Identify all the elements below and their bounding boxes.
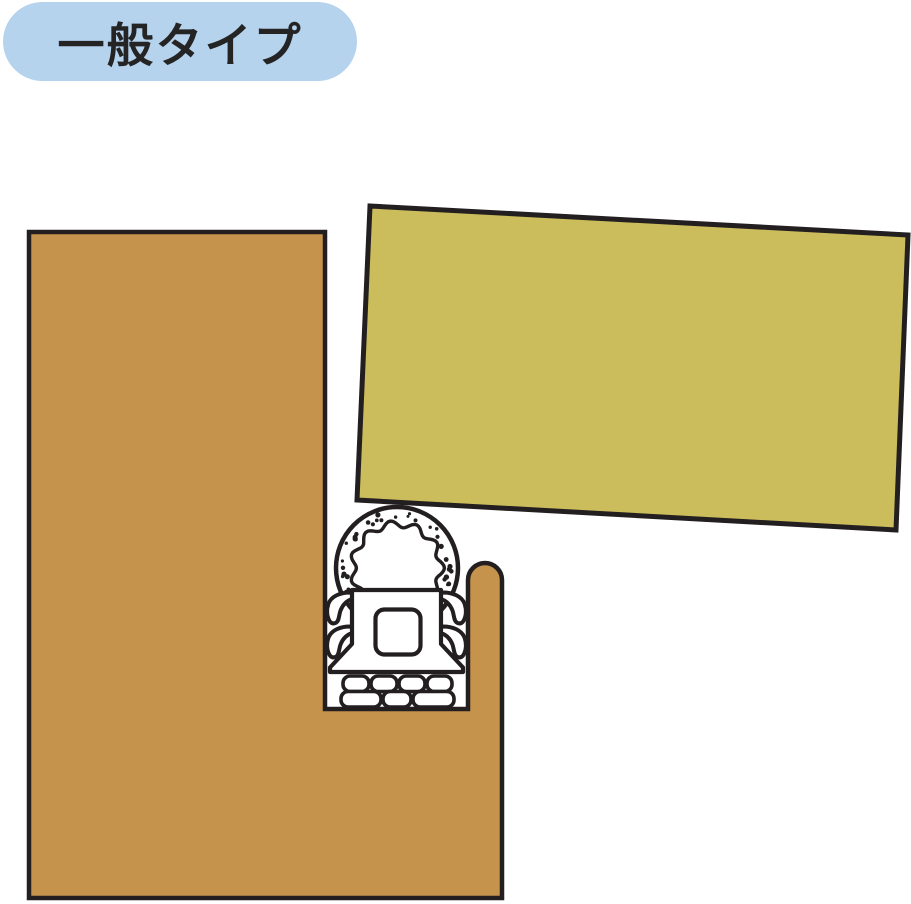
- stipple-dot: [341, 575, 344, 578]
- stipple-dot: [345, 542, 348, 545]
- stipple-dot: [449, 569, 454, 574]
- stipple-dot: [444, 557, 449, 562]
- stipple-dot: [435, 535, 439, 539]
- seal-rib-segment: [383, 692, 411, 708]
- stipple-dot: [414, 518, 418, 522]
- seal-gasket: [327, 507, 466, 707]
- stipple-dot: [447, 564, 452, 569]
- type-badge: 一般タイプ: [3, 2, 357, 81]
- stipple-dot: [341, 559, 344, 562]
- seal-base-ribs: [341, 676, 454, 707]
- stipple-dot: [371, 522, 375, 526]
- stipple-dot: [446, 582, 451, 587]
- seal-rib-segment: [399, 676, 425, 692]
- door-panel: [357, 206, 908, 530]
- stipple-dot: [429, 526, 432, 529]
- stipple-dot: [435, 527, 439, 531]
- door-seal-cross-section: [0, 0, 911, 904]
- stipple-dot: [375, 519, 379, 523]
- seal-rib-segment: [341, 692, 381, 708]
- seal-rib-segment: [427, 676, 452, 692]
- stipple-dot: [341, 566, 345, 570]
- stipple-dot: [394, 515, 397, 518]
- type-badge-label: 一般タイプ: [58, 7, 303, 76]
- seal-rib-segment: [371, 676, 397, 692]
- stipple-dot: [354, 532, 358, 536]
- seal-mount-hole: [376, 610, 421, 655]
- stipple-dot: [366, 520, 371, 525]
- stipple-dot: [444, 574, 449, 579]
- stipple-dot: [375, 512, 380, 517]
- seal-rib-segment: [343, 676, 369, 692]
- stipple-dot: [408, 512, 411, 515]
- stipple-dot: [379, 518, 383, 522]
- stipple-dot: [407, 515, 410, 518]
- seal-diagram-canvas: 一般タイプ: [0, 0, 911, 904]
- seal-rib-segment: [413, 692, 454, 708]
